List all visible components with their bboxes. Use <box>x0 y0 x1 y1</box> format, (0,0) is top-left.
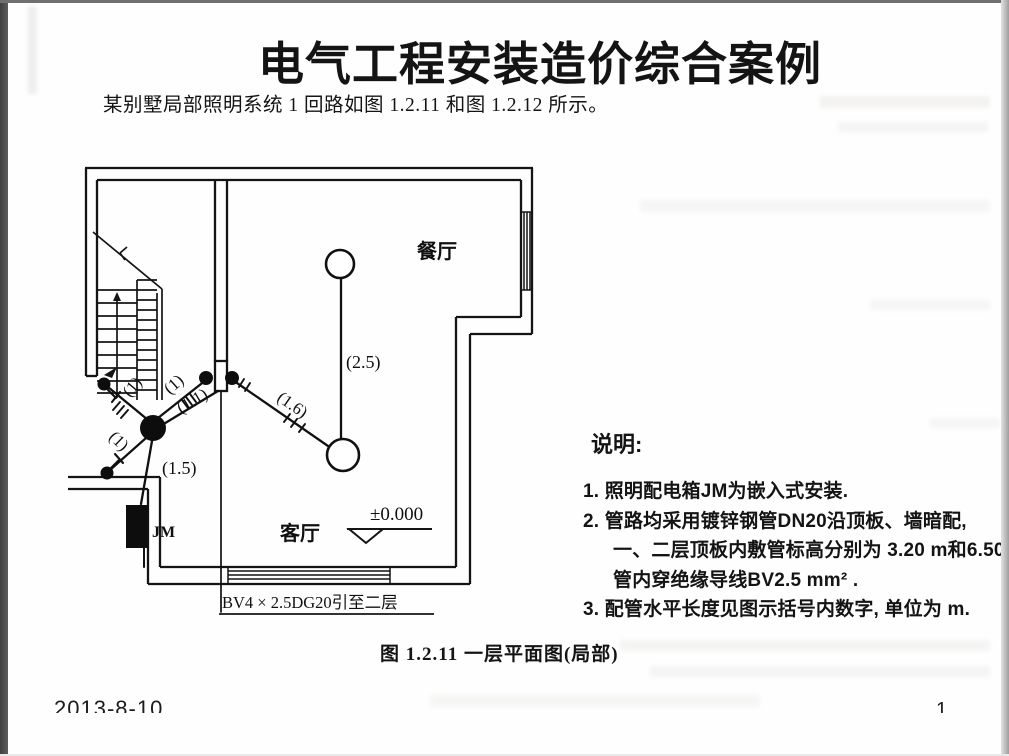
window-edge-right <box>1001 0 1009 756</box>
page-title: 电气工程安装造价综合案例 <box>258 28 814 94</box>
scan-artifact <box>640 200 990 212</box>
room-label-dining: 餐厅 <box>417 239 457 263</box>
wire-to-jm <box>141 441 152 504</box>
partition-end-box <box>215 361 227 391</box>
bottom-wall-window <box>228 568 390 584</box>
scan-artifact <box>820 96 990 108</box>
scan-artifact <box>838 122 988 132</box>
elevation-label: ±0.000 <box>370 504 423 525</box>
up-arrow <box>113 292 121 301</box>
note-line: 管内穿绝缘导线BV2.5 mm² . <box>613 566 1003 596</box>
seg-label-1-down-left: (1) <box>105 427 132 454</box>
notes-heading: 说明: <box>591 427 1003 459</box>
window-edge-left <box>0 0 8 756</box>
seg-label-2-5: (2.5) <box>346 352 381 373</box>
scan-artifact <box>620 640 990 651</box>
notes-section: 说明: 1. 照明配电箱JM为嵌入式安装. 2. 管路均采用镀锌钢管DN20沿顶… <box>583 427 1003 625</box>
seg-label-1-5: (1.5) <box>162 458 197 479</box>
wall-box-left <box>199 371 213 385</box>
right-wall-window <box>521 212 532 290</box>
note-line: 一、二层顶板内敷管标高分别为 3.20 m和6.50 m, <box>613 536 1003 566</box>
figure-caption: 图 1.2.11 一层平面图(局部) <box>380 639 619 666</box>
lamp-living <box>327 439 359 471</box>
page-number: 1 <box>936 698 947 713</box>
jm-panel-box <box>126 505 148 548</box>
junction-lamp-dot <box>140 415 166 441</box>
intro-text: 某别墅局部照明系统 1 回路如图 1.2.11 和图 1.2.12 所示。 <box>103 88 608 117</box>
wiring <box>108 279 341 612</box>
scan-artifact <box>650 666 990 677</box>
switch-lower-left <box>101 467 114 480</box>
room-label-living: 客厅 <box>279 521 320 545</box>
stairs <box>93 232 162 400</box>
riser-label: BV4 × 2.5DG20引至二层 <box>222 593 398 612</box>
scan-artifact <box>870 300 990 310</box>
seg-label-1-up-left: (1) <box>119 373 146 400</box>
footer-date: 2013-8-10 <box>54 696 163 713</box>
switch-tick-lower-left <box>111 454 123 468</box>
note-line: 3. 配管水平长度见图示括号内数字, 单位为 m. <box>583 595 1003 625</box>
slide: 电气工程安装造价综合案例 某别墅局部照明系统 1 回路如图 1.2.11 和图 … <box>0 0 1009 756</box>
note-line: 2. 管路均采用镀锌钢管DN20沿顶板、墙暗配, <box>583 507 1003 537</box>
switch-upper-left <box>98 378 111 391</box>
elevation-marker <box>347 529 432 543</box>
seg-label-1-6: (1.6) <box>274 388 312 422</box>
wall-box-right <box>225 371 239 385</box>
window-edge-top <box>0 0 1009 3</box>
jm-label: JM <box>152 524 175 541</box>
note-line: 1. 照明配电箱JM为嵌入式安装. <box>583 477 1003 507</box>
floor-plan: 餐厅 客厅 JM (2.5) (1.5) (1.6) (1.1) (1) (1)… <box>60 148 560 633</box>
seg-label-1-up-right: (1) <box>160 371 187 398</box>
scan-artifact <box>28 6 37 94</box>
scan-artifact <box>430 695 760 707</box>
lamp-dining <box>326 250 354 278</box>
